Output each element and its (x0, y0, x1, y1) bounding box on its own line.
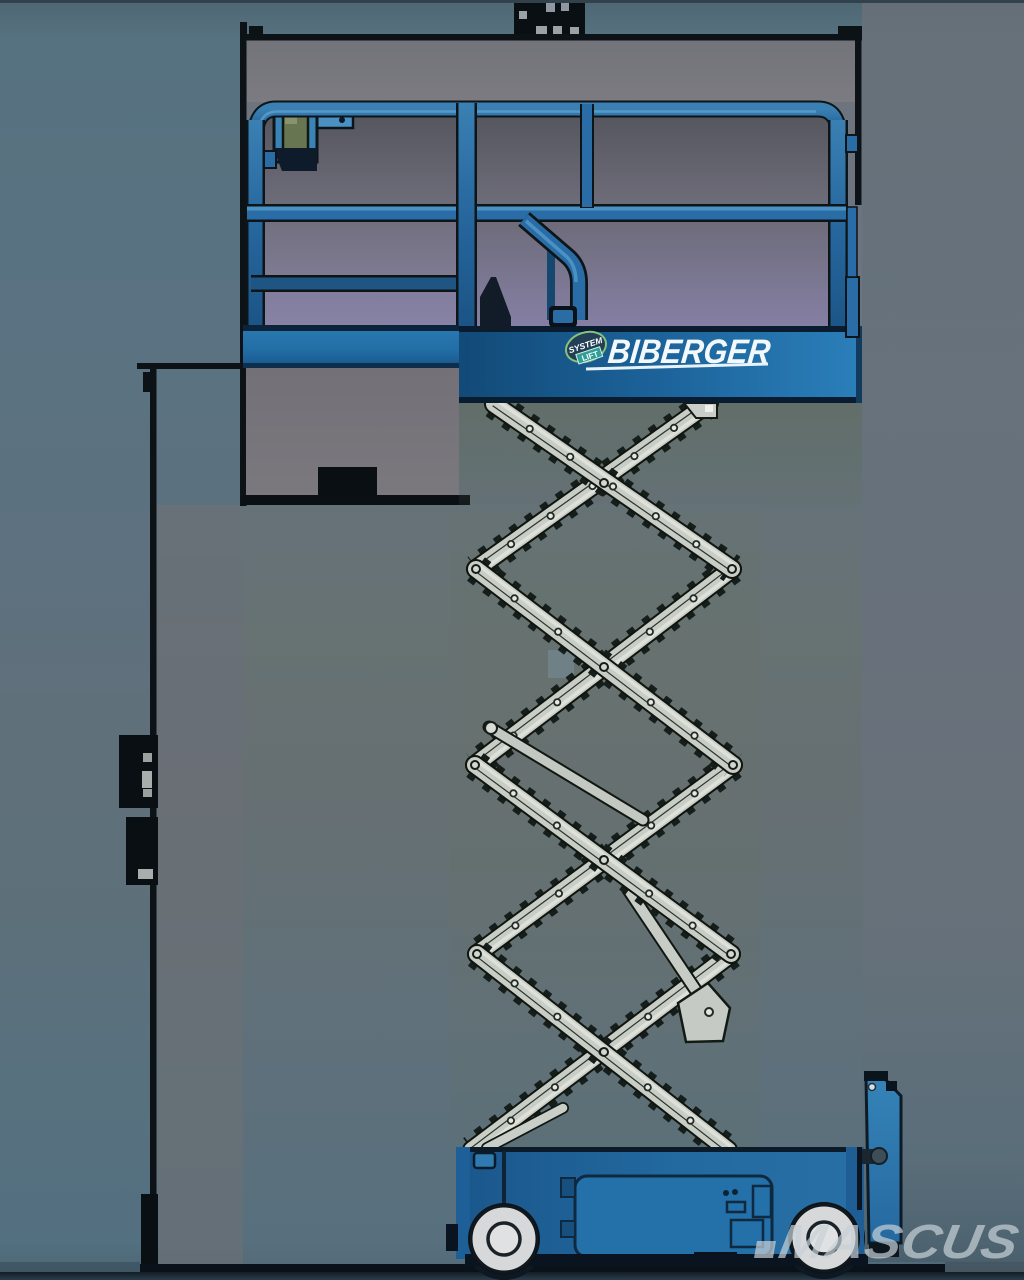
svg-text:MASCUS: MASCUS (775, 1215, 1022, 1269)
